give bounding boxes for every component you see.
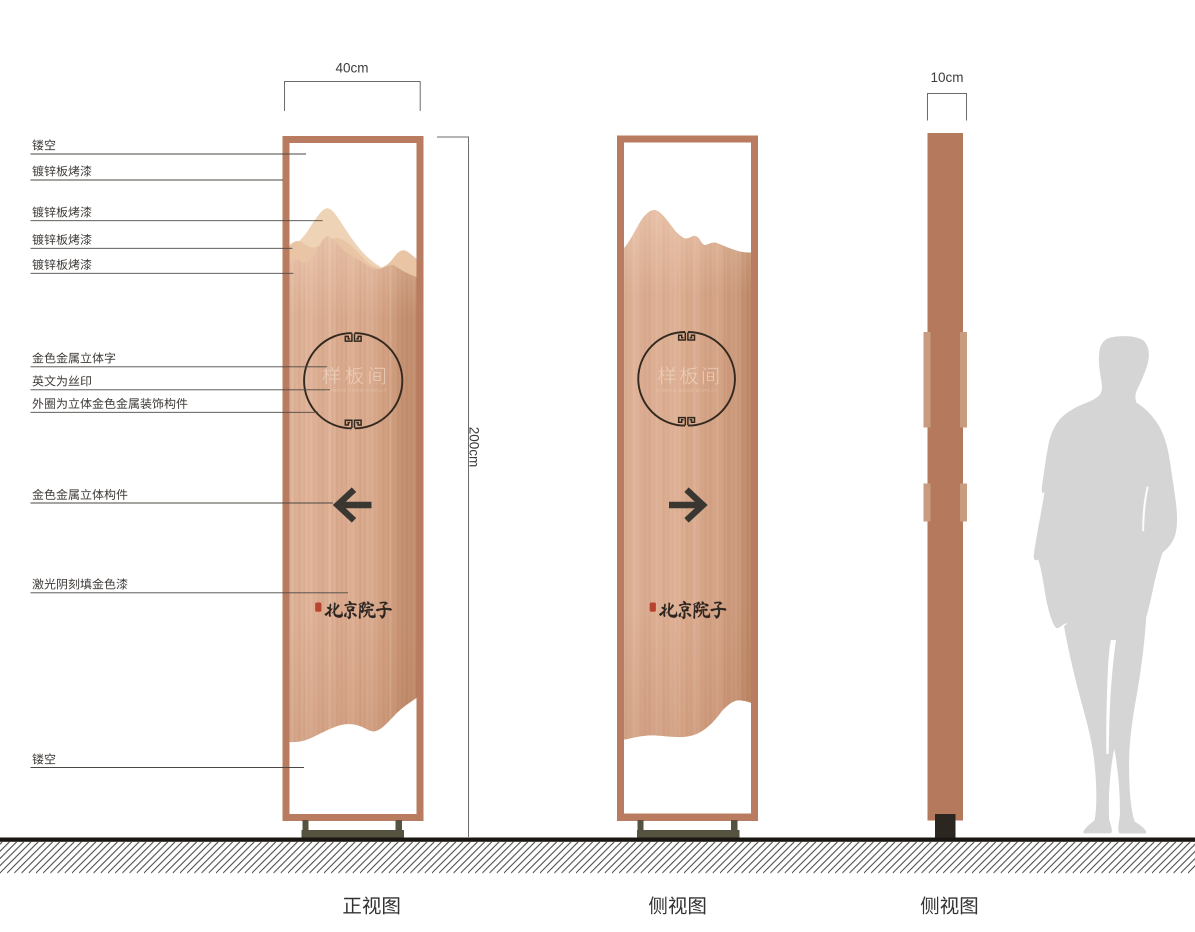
svg-text:SAMPLE ROOM DISPLAY: SAMPLE ROOM DISPLAY [656,388,717,393]
svg-text:10cm: 10cm [930,70,963,85]
svg-text:200cm: 200cm [466,427,481,468]
svg-text:40cm: 40cm [335,61,368,76]
svg-text:SAMPLE ROOM DISPLAY: SAMPLE ROOM DISPLAY [326,388,387,393]
